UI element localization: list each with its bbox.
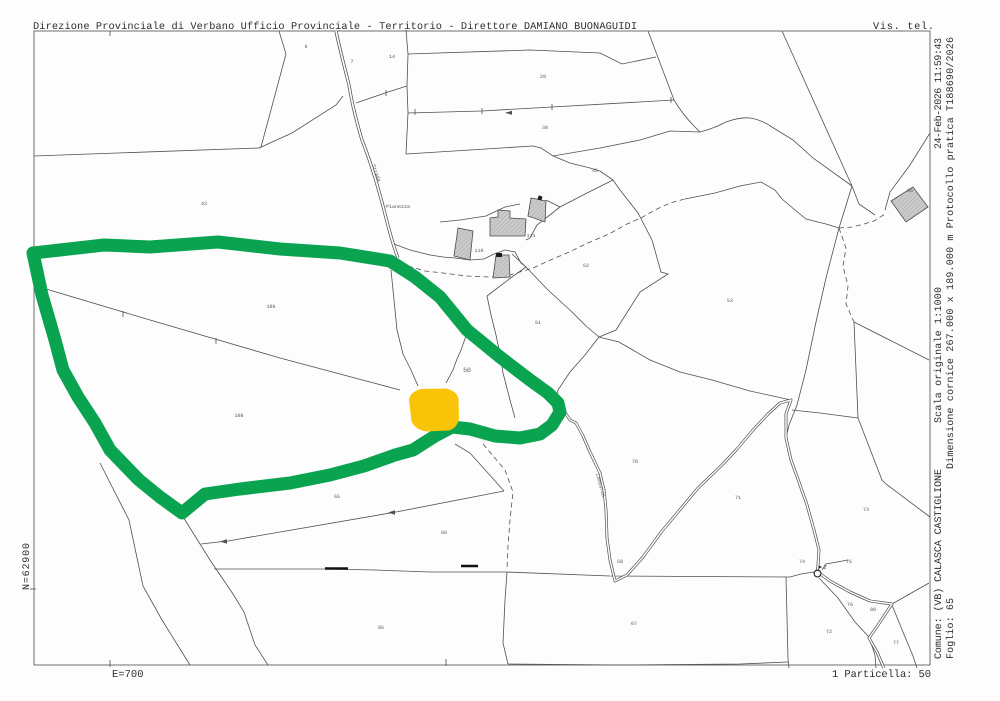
svg-text:111: 111: [526, 233, 535, 239]
svg-text:106: 106: [266, 304, 275, 310]
svg-text:73: 73: [863, 507, 869, 513]
svg-text:77: 77: [893, 640, 899, 646]
svg-text:2: 2: [823, 564, 827, 571]
svg-text:43: 43: [201, 201, 207, 207]
svg-text:14: 14: [389, 54, 395, 60]
svg-text:Scala originale 1:1000: Scala originale 1:1000: [933, 287, 945, 423]
svg-text:72: 72: [826, 629, 832, 635]
svg-text:66: 66: [441, 530, 447, 536]
svg-text:53: 53: [727, 298, 733, 304]
svg-text:1 Particella: 50: 1 Particella: 50: [832, 669, 931, 681]
svg-text:70: 70: [632, 459, 638, 465]
svg-text:108: 108: [234, 413, 243, 419]
svg-text:Pianezza: Pianezza: [386, 204, 410, 210]
svg-text:85: 85: [378, 625, 384, 631]
svg-text:51: 51: [535, 320, 541, 326]
svg-text:24-Feb-2026 11:59:43: 24-Feb-2026 11:59:43: [933, 38, 945, 149]
svg-text:50: 50: [463, 367, 471, 374]
svg-text:7: 7: [350, 59, 353, 65]
svg-text:52: 52: [583, 263, 589, 269]
svg-text:Foglio: 65: Foglio: 65: [945, 598, 957, 659]
svg-text:Vis. tel.: Vis. tel.: [873, 21, 934, 33]
svg-text:30: 30: [542, 125, 548, 131]
svg-text:58: 58: [617, 559, 623, 565]
svg-text:67: 67: [631, 621, 637, 627]
svg-text:75: 75: [846, 559, 852, 565]
svg-text:36: 36: [907, 188, 913, 194]
svg-text:Direzione Provinciale di Verba: Direzione Provinciale di Verbano Ufficio…: [33, 21, 637, 33]
svg-text:6: 6: [304, 44, 307, 50]
svg-text:65: 65: [334, 494, 340, 500]
svg-text:45: 45: [592, 168, 598, 174]
svg-text:29: 29: [540, 74, 546, 80]
svg-text:110: 110: [474, 248, 483, 254]
svg-text:76: 76: [847, 602, 853, 608]
svg-text:N=62900: N=62900: [22, 543, 33, 590]
svg-text:Dimensione cornice 267.000 x: Dimensione cornice 267.000 x 189.000 m P…: [945, 37, 957, 469]
svg-text:71: 71: [735, 495, 741, 501]
svg-text:Comune: (VB) CALASCA CASTIGLIO: Comune: (VB) CALASCA CASTIGLIONE: [933, 469, 945, 659]
svg-text:74: 74: [799, 559, 805, 565]
svg-text:E=700: E=700: [112, 669, 144, 681]
svg-text:80: 80: [870, 607, 876, 613]
